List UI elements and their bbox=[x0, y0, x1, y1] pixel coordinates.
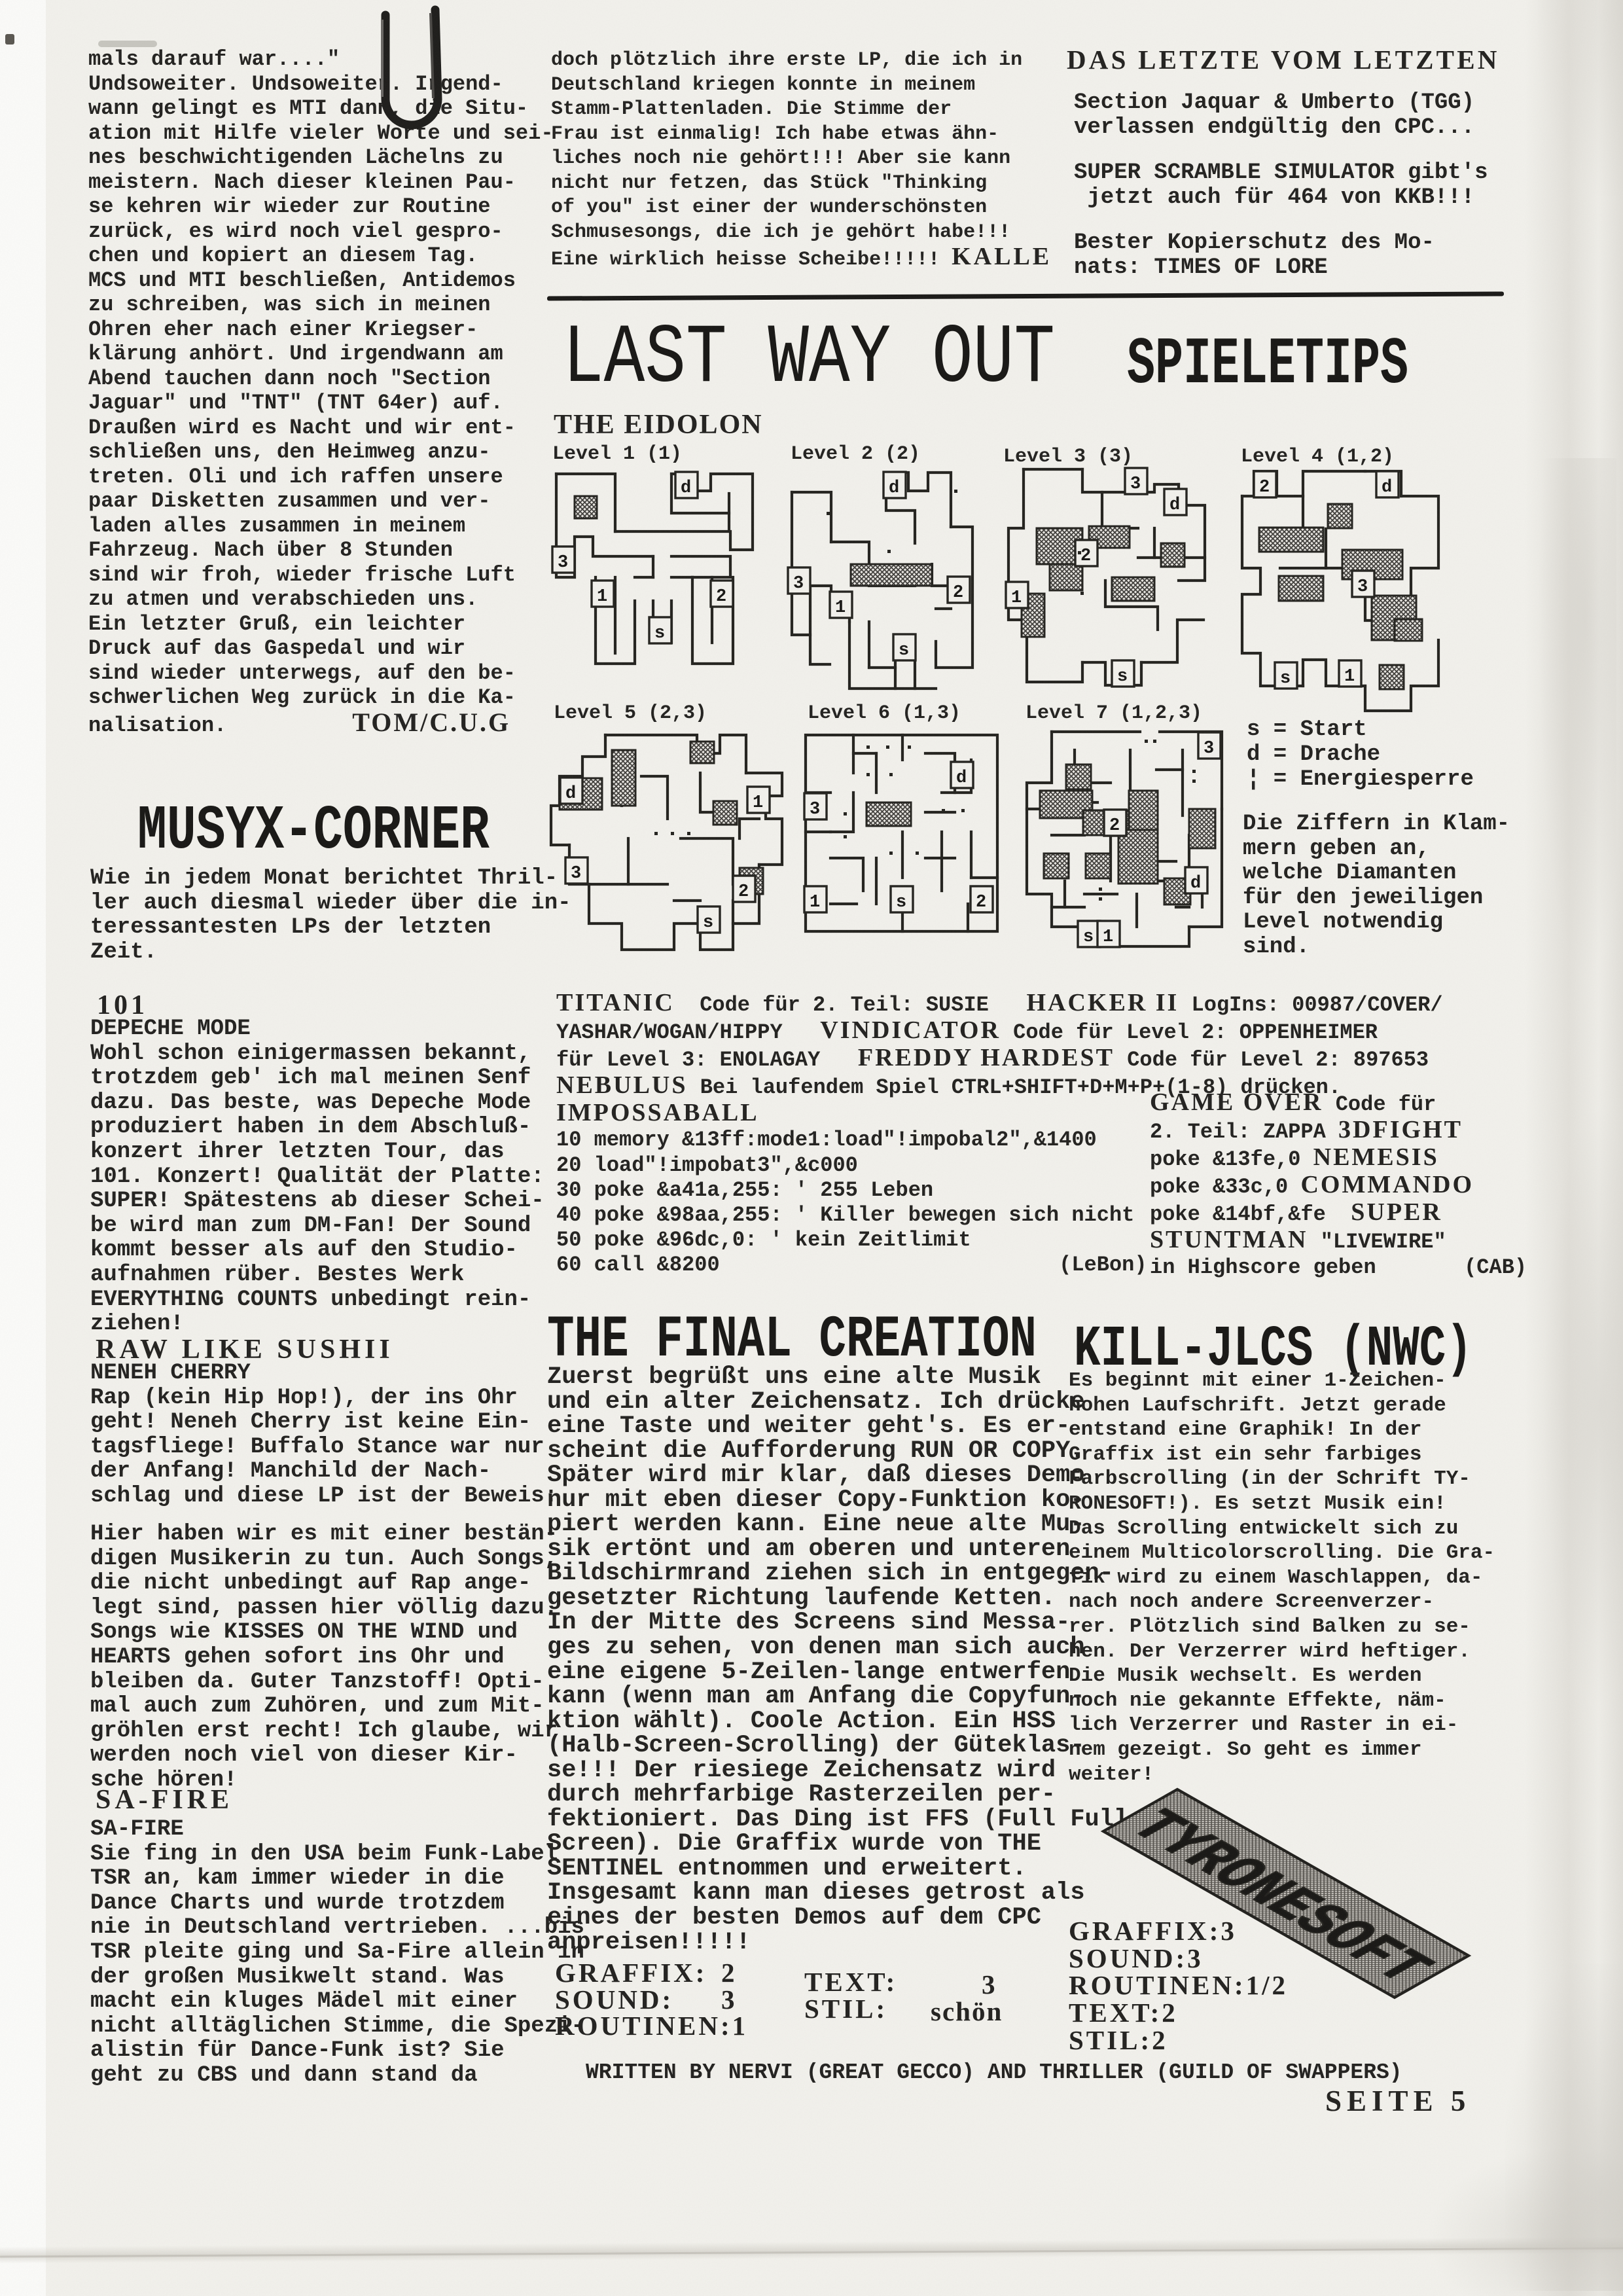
svg-text:TYRONESOFT: TYRONESOFT bbox=[1111, 1802, 1446, 1993]
